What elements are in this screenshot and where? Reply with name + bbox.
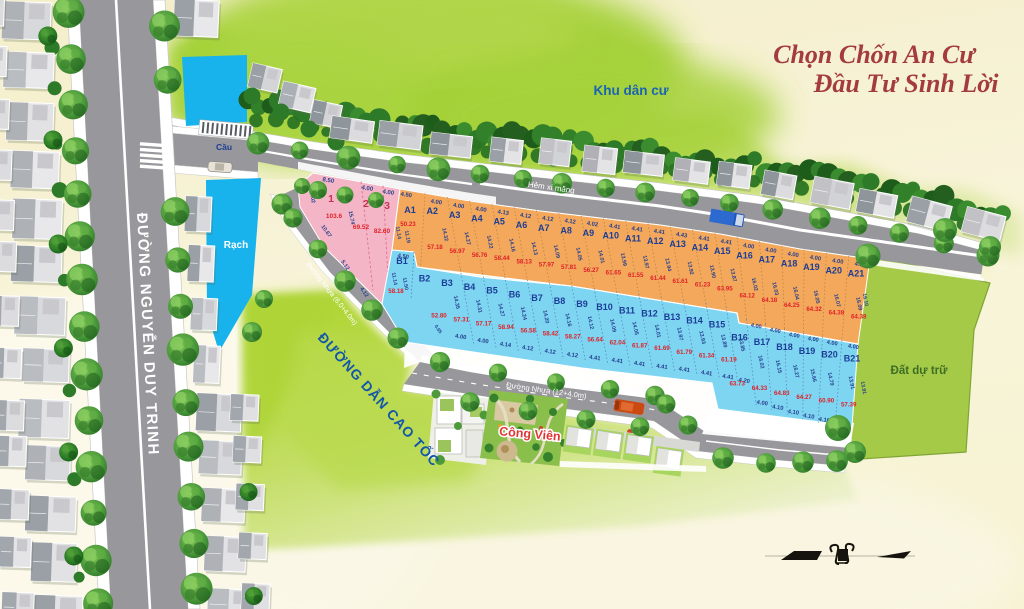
svg-text:B20: B20 <box>821 350 838 360</box>
svg-text:B13: B13 <box>664 312 681 322</box>
svg-text:64.38: 64.38 <box>829 310 845 317</box>
svg-text:A10: A10 <box>602 231 619 241</box>
svg-text:64.18: 64.18 <box>762 297 778 304</box>
svg-text:61.79: 61.79 <box>677 349 693 356</box>
svg-text:B12: B12 <box>641 309 658 319</box>
svg-text:57.31: 57.31 <box>454 317 470 324</box>
svg-text:A3: A3 <box>449 210 461 220</box>
svg-text:58.27: 58.27 <box>565 334 581 341</box>
svg-text:A18: A18 <box>781 259 798 269</box>
svg-text:Chọn Chốn An Cư: Chọn Chốn An Cư <box>773 40 977 69</box>
svg-text:A16: A16 <box>736 250 753 260</box>
svg-text:B8: B8 <box>554 296 566 306</box>
svg-text:56.64: 56.64 <box>587 336 603 343</box>
svg-text:A2: A2 <box>427 206 439 216</box>
svg-text:56.27: 56.27 <box>583 267 599 274</box>
svg-text:B16: B16 <box>731 333 748 343</box>
svg-text:B15: B15 <box>709 319 726 329</box>
svg-text:B14: B14 <box>686 316 703 326</box>
svg-text:64.12: 64.12 <box>739 293 755 300</box>
svg-text:Khu dân cư: Khu dân cư <box>593 83 668 98</box>
svg-text:A21: A21 <box>848 269 865 279</box>
svg-text:B7: B7 <box>531 293 543 303</box>
svg-text:64.38: 64.38 <box>851 313 867 320</box>
svg-text:82.60: 82.60 <box>374 228 391 235</box>
svg-text:B5: B5 <box>486 286 498 296</box>
svg-text:Đất dự trữ: Đất dự trữ <box>891 365 949 377</box>
svg-text:A15: A15 <box>714 246 731 256</box>
svg-text:61.65: 61.65 <box>606 270 622 277</box>
svg-text:A19: A19 <box>803 262 820 272</box>
svg-text:64.25: 64.25 <box>784 302 800 309</box>
svg-text:50.23: 50.23 <box>400 221 416 228</box>
svg-text:A13: A13 <box>669 239 686 249</box>
svg-text:52.80: 52.80 <box>431 312 447 319</box>
svg-text:57.17: 57.17 <box>476 320 492 327</box>
svg-text:B9: B9 <box>576 299 588 309</box>
svg-text:B21: B21 <box>844 353 861 363</box>
svg-text:A17: A17 <box>759 255 776 265</box>
svg-text:57.39: 57.39 <box>841 401 857 408</box>
svg-text:61.87: 61.87 <box>632 342 648 349</box>
svg-text:Cầu: Cầu <box>216 142 232 152</box>
svg-text:103.6: 103.6 <box>326 213 343 220</box>
svg-text:A5: A5 <box>493 217 505 227</box>
svg-text:A4: A4 <box>471 214 483 224</box>
svg-text:61.44: 61.44 <box>650 275 666 282</box>
svg-text:58.13: 58.13 <box>516 258 532 265</box>
svg-text:A1: A1 <box>404 205 416 215</box>
svg-text:64.33: 64.33 <box>752 385 768 392</box>
svg-text:57.18: 57.18 <box>427 244 443 251</box>
svg-text:56.97: 56.97 <box>450 248 466 255</box>
svg-text:B6: B6 <box>509 289 521 299</box>
svg-text:61.23: 61.23 <box>695 282 711 289</box>
svg-text:58.44: 58.44 <box>494 255 510 262</box>
svg-text:A14: A14 <box>692 243 709 253</box>
svg-text:1: 1 <box>328 193 334 205</box>
svg-text:B2: B2 <box>419 274 431 284</box>
svg-text:61.19: 61.19 <box>721 356 737 363</box>
svg-text:A6: A6 <box>516 220 528 230</box>
svg-text:58.18: 58.18 <box>388 288 404 295</box>
svg-text:58.42: 58.42 <box>543 331 559 338</box>
svg-text:62.04: 62.04 <box>610 339 626 346</box>
svg-text:B19: B19 <box>799 346 816 356</box>
svg-text:3: 3 <box>384 200 390 212</box>
svg-text:A11: A11 <box>625 233 641 243</box>
svg-text:B3: B3 <box>441 278 453 288</box>
svg-text:57.81: 57.81 <box>561 264 577 271</box>
svg-text:A8: A8 <box>560 226 572 236</box>
svg-text:63.73: 63.73 <box>729 381 745 388</box>
svg-text:B17: B17 <box>754 337 771 347</box>
svg-text:57.97: 57.97 <box>539 261 555 268</box>
svg-text:B18: B18 <box>776 342 793 352</box>
svg-text:B11: B11 <box>619 305 635 315</box>
svg-text:B10: B10 <box>596 302 613 312</box>
svg-text:63.95: 63.95 <box>717 285 733 292</box>
svg-text:A9: A9 <box>583 228 595 238</box>
svg-text:B4: B4 <box>464 282 476 292</box>
svg-text:61.55: 61.55 <box>628 272 644 279</box>
svg-text:61.69: 61.69 <box>654 345 670 352</box>
svg-text:58.94: 58.94 <box>498 324 514 331</box>
svg-text:69.52: 69.52 <box>353 224 370 231</box>
svg-text:A12: A12 <box>647 236 664 246</box>
svg-text:64.32: 64.32 <box>806 306 822 313</box>
svg-text:56.76: 56.76 <box>472 252 488 259</box>
svg-text:A20: A20 <box>825 265 842 275</box>
svg-text:Đầu Tư Sinh Lời: Đầu Tư Sinh Lời <box>813 69 1000 98</box>
svg-text:64.83: 64.83 <box>774 390 790 397</box>
svg-text:56.58: 56.58 <box>520 327 536 334</box>
svg-text:61.34: 61.34 <box>699 353 715 360</box>
svg-text:60.90: 60.90 <box>819 398 835 405</box>
svg-text:Rạch: Rạch <box>224 240 248 251</box>
svg-text:61.61: 61.61 <box>673 278 689 285</box>
svg-text:A7: A7 <box>538 223 550 233</box>
svg-text:64.27: 64.27 <box>796 394 812 401</box>
